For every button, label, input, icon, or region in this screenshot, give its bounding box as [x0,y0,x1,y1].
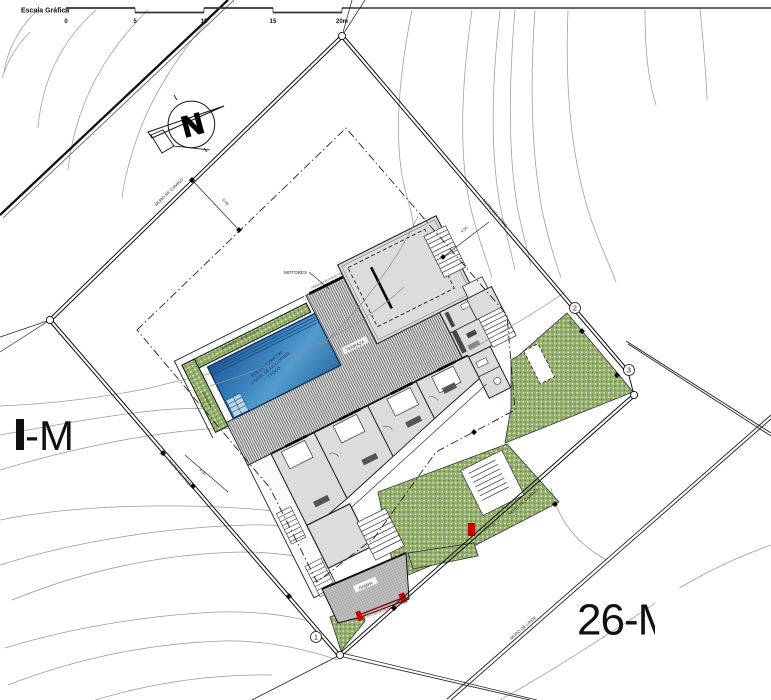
svg-text:MOTORES: MOTORES [284,270,307,275]
svg-text:10: 10 [201,19,208,25]
svg-text:1: 1 [314,635,318,642]
svg-text:3: 3 [627,368,631,375]
svg-text:Escala Gráfica: Escala Gráfica [21,8,69,15]
svg-text:2: 2 [573,306,577,313]
svg-text:-M: -M [25,412,74,459]
svg-text:15: 15 [270,19,277,25]
